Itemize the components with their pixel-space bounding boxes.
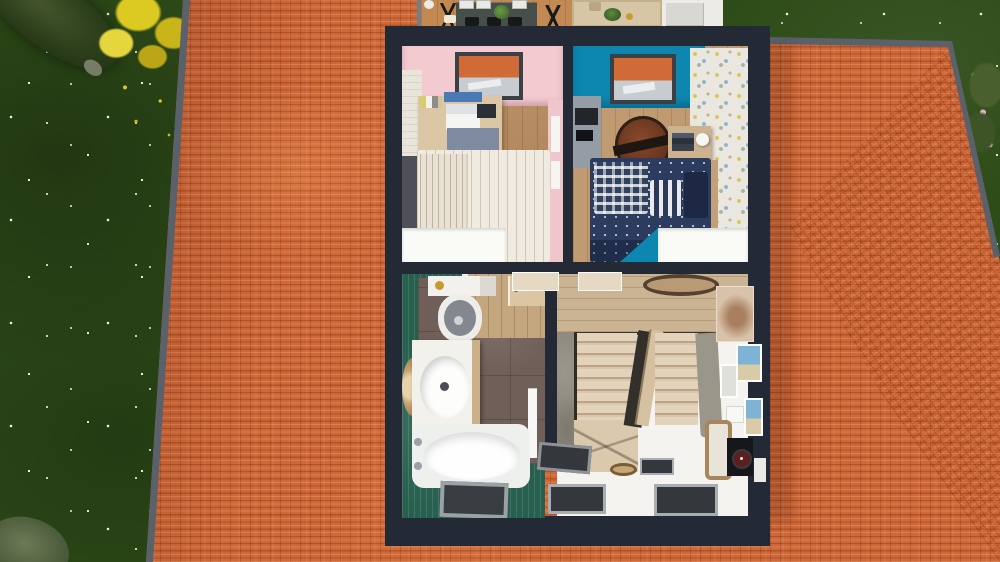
open-door-bedroom-pink[interactable]: [512, 272, 559, 291]
roof-window[interactable]: [640, 458, 674, 475]
room-bathroom[interactable]: [402, 274, 545, 518]
blue-poster[interactable]: [444, 92, 482, 102]
white-mug[interactable]: [424, 0, 434, 9]
wall-photo-large[interactable]: [716, 286, 754, 342]
wall-card-seaside[interactable]: [744, 398, 763, 436]
monitor[interactable]: [575, 108, 598, 125]
wall-bottom: [385, 516, 770, 546]
basin-faucet: [440, 382, 449, 391]
table-lamp[interactable]: [696, 133, 709, 146]
rug-band: [613, 134, 674, 156]
navy-cushion: [684, 172, 708, 218]
easel-chair-right[interactable]: [541, 5, 565, 26]
clock-face: [732, 449, 752, 469]
skylight-window[interactable]: [610, 54, 676, 104]
tub-interior: [424, 432, 520, 480]
chair-cushion: [444, 15, 456, 23]
clock-center-dot: [740, 457, 743, 460]
black-frame-clock[interactable]: [727, 438, 753, 476]
white-chair[interactable]: [512, 0, 527, 9]
stair-flight-right[interactable]: [655, 333, 698, 425]
wall-top: [385, 26, 770, 48]
book-stack[interactable]: [672, 133, 694, 151]
oval-rug[interactable]: [643, 274, 719, 296]
table-plant[interactable]: [494, 5, 509, 19]
roof-window[interactable]: [548, 484, 606, 514]
ground-floor-glimpse: [421, 0, 723, 28]
roof-window[interactable]: [537, 442, 592, 475]
rug-stool[interactable]: [589, 2, 601, 11]
stair-wall-concrete: [557, 332, 574, 462]
toilet-cistern[interactable]: [428, 276, 496, 296]
white-chair[interactable]: [476, 0, 491, 9]
wall-bath-hall: [545, 272, 557, 462]
striped-pillow: [650, 180, 682, 216]
black-chair[interactable]: [465, 17, 479, 26]
room-bedroom-pink[interactable]: [402, 46, 563, 262]
room-bedroom-blue[interactable]: [573, 46, 748, 262]
tablet[interactable]: [477, 104, 496, 118]
open-door-bedroom-blue[interactable]: [578, 272, 622, 291]
gold-decor[interactable]: [626, 13, 633, 20]
bath-roof-window[interactable]: [439, 481, 508, 518]
black-chair[interactable]: [508, 17, 522, 26]
wall-panel: [551, 116, 560, 152]
wall-photo-small[interactable]: [720, 364, 738, 398]
checkered-pillow: [594, 162, 648, 214]
toilet-bowl[interactable]: [438, 294, 482, 342]
floorplan-3d-scene: [0, 0, 1000, 562]
roof-window[interactable]: [654, 484, 718, 516]
sofa-cushions: [666, 3, 704, 26]
bathtub[interactable]: [412, 424, 530, 488]
laptop[interactable]: [446, 104, 480, 130]
seat-dot: [454, 316, 463, 325]
wall-left: [385, 26, 402, 546]
wall-niche: [754, 458, 766, 482]
gold-flush-button[interactable]: [435, 281, 444, 290]
wall-mid-horizontal: [396, 260, 748, 274]
rug-plant[interactable]: [604, 8, 621, 21]
sloped-ceiling-cut: [402, 228, 506, 262]
wall-card-seaside[interactable]: [736, 344, 762, 382]
tub-faucet: [414, 438, 422, 446]
sloped-ceiling-cut: [658, 228, 748, 262]
wall-between-bedrooms: [563, 44, 573, 262]
wall-panel: [551, 161, 560, 189]
tub-faucet: [414, 462, 422, 470]
white-chair[interactable]: [459, 0, 474, 9]
white-sofa[interactable]: [662, 0, 723, 28]
small-round-rug[interactable]: [610, 463, 637, 476]
desk-books[interactable]: [420, 96, 442, 108]
desk-object[interactable]: [576, 130, 593, 141]
